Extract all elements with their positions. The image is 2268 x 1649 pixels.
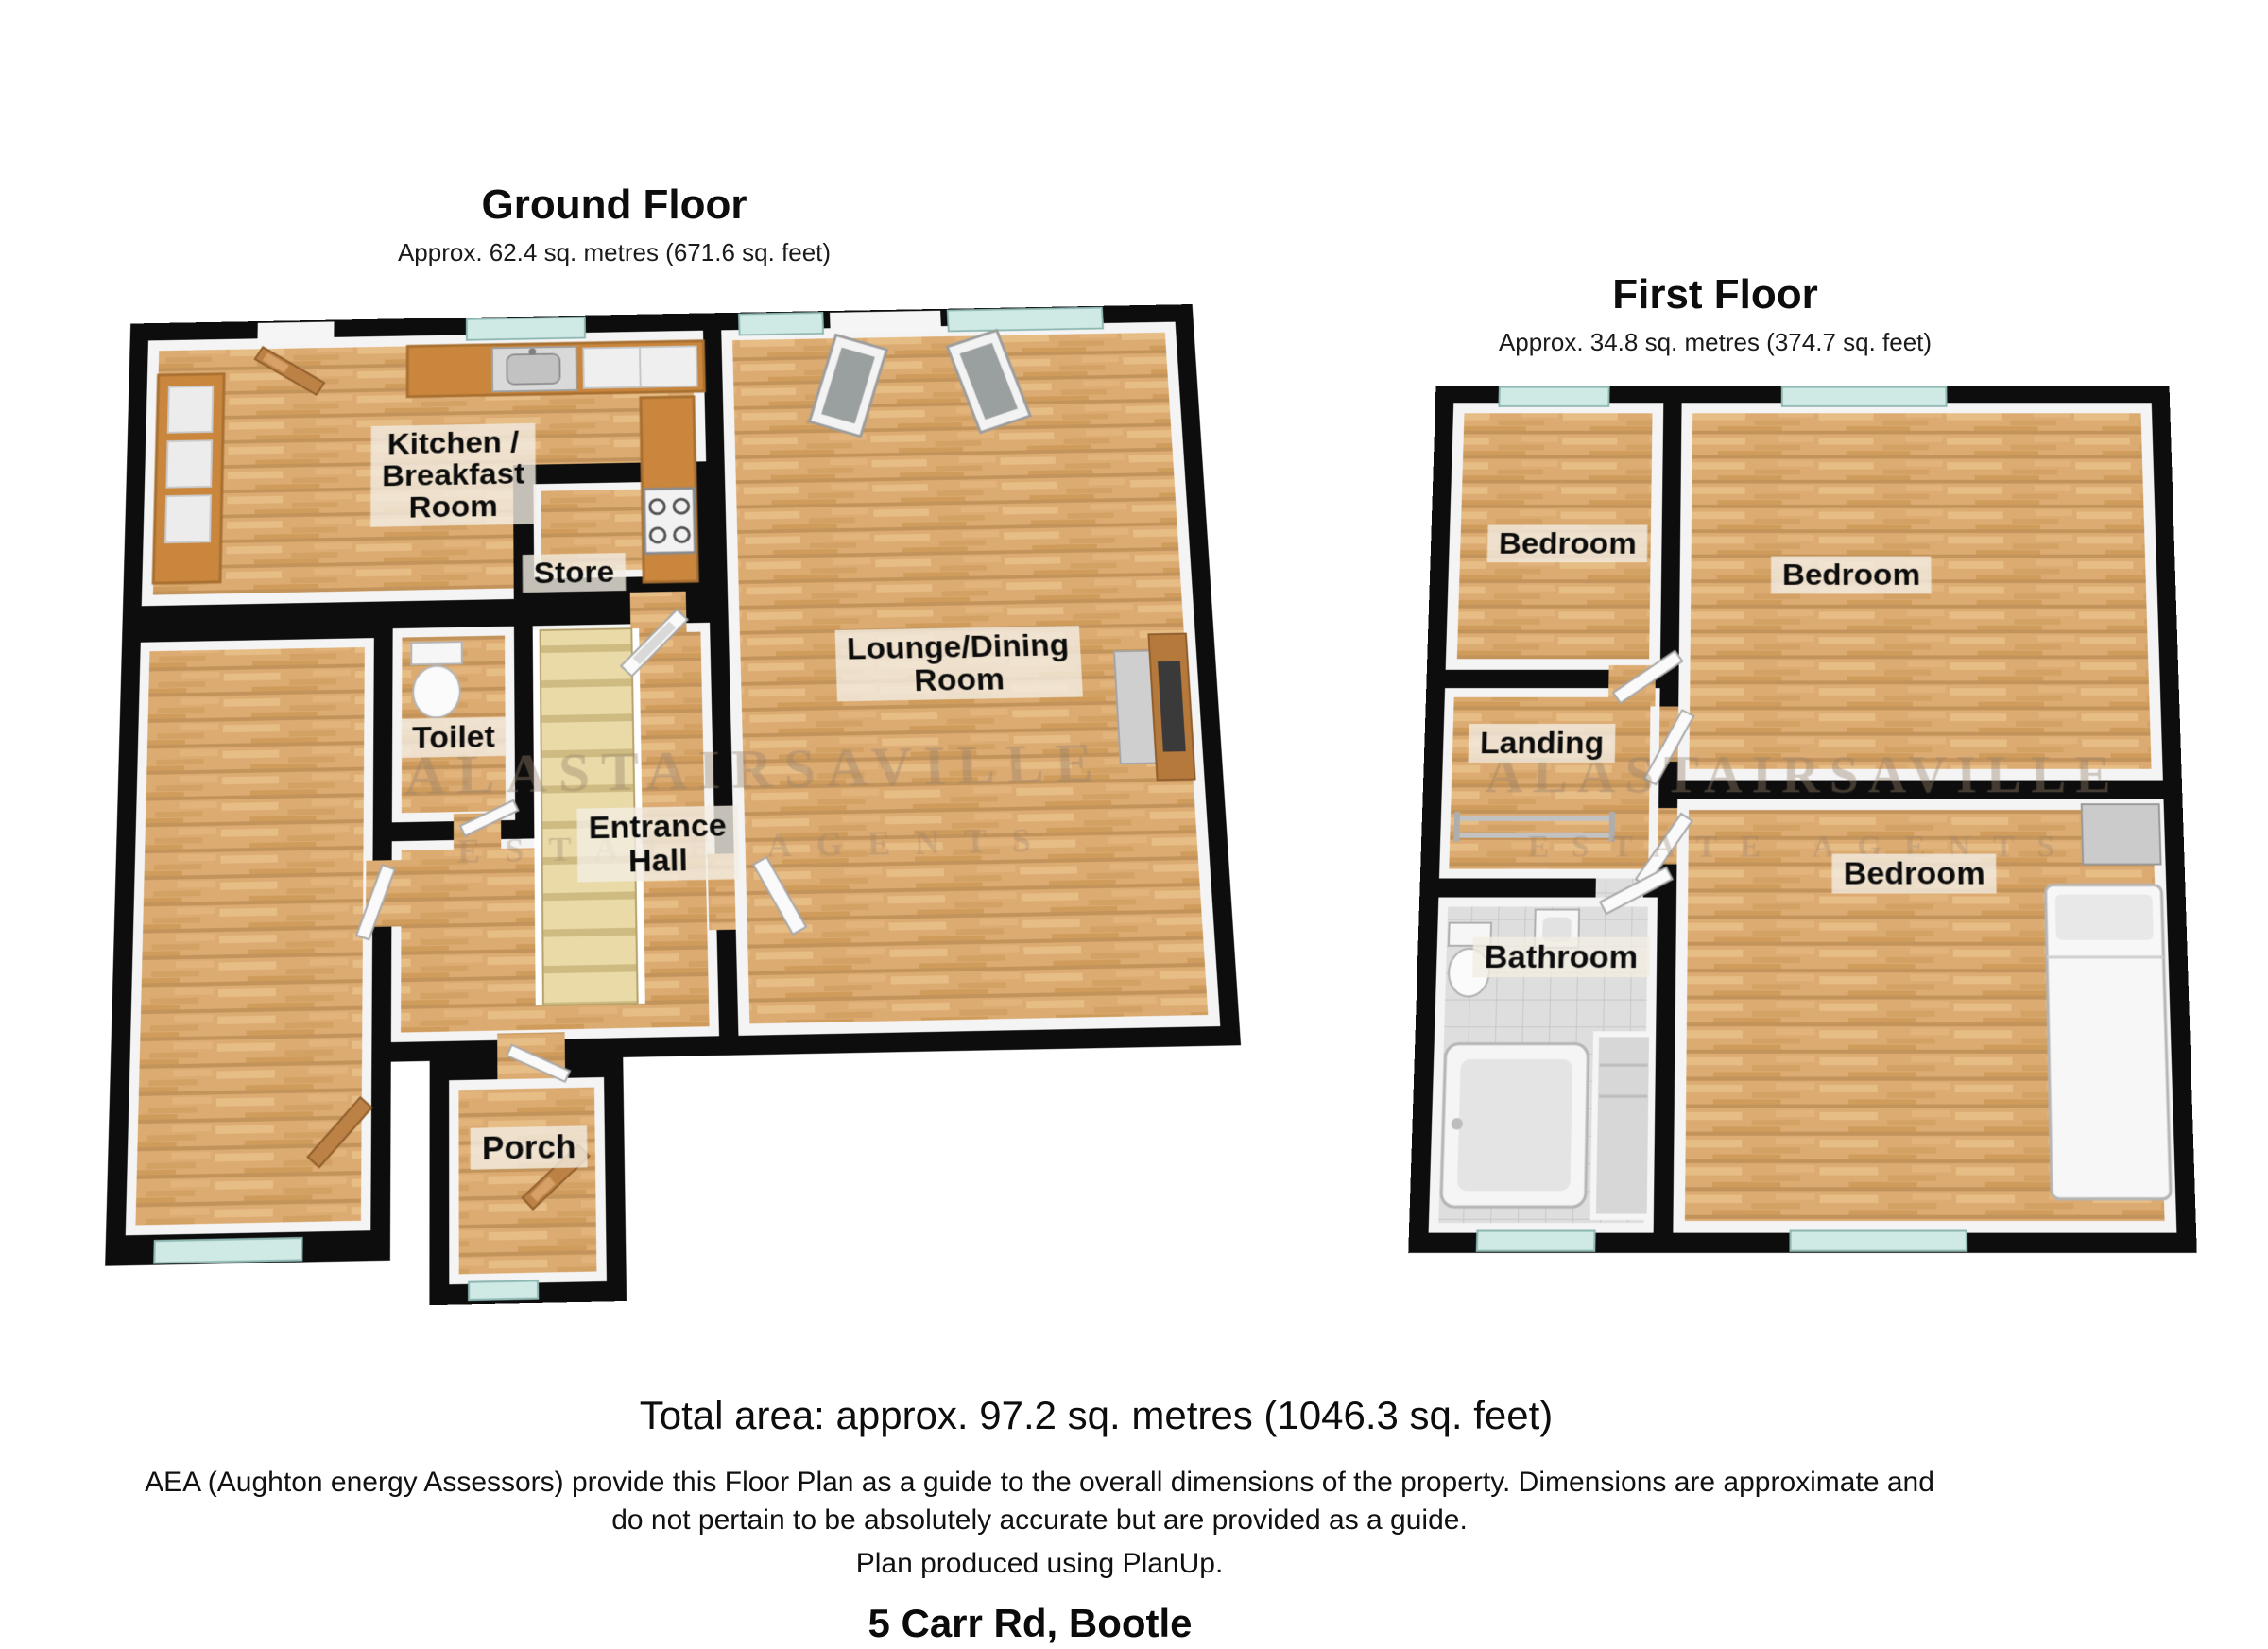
label-bathroom: Bathroom bbox=[1472, 937, 1650, 978]
lounge-window-right bbox=[948, 308, 1103, 332]
ground-floor-plan: ALASTAIRSAVILLE ESTATE AGENTS Kitchen / … bbox=[74, 303, 1291, 1312]
label-store: Store bbox=[523, 553, 626, 593]
label-landing: Landing bbox=[1468, 724, 1615, 763]
ground-floor-subtitle: Approx. 62.4 sq. metres (671.6 sq. feet) bbox=[113, 238, 1115, 267]
bedroom2-window bbox=[1782, 387, 1947, 406]
label-porch: Porch bbox=[471, 1125, 588, 1169]
bath-fixture bbox=[1441, 1044, 1589, 1208]
wardrobe bbox=[2082, 804, 2161, 864]
first-floor-title: First Floor bbox=[1422, 272, 2008, 318]
produced-with-text: Plan produced using PlanUp. bbox=[0, 1548, 2079, 1580]
room-landing bbox=[1439, 688, 1660, 878]
left-room-window bbox=[154, 1238, 301, 1263]
lounge-door-opening bbox=[830, 311, 941, 334]
label-bedroom-top-right: Bedroom bbox=[1771, 557, 1932, 594]
first-floor-plan-graphic bbox=[1407, 386, 2197, 1279]
shower-fixture bbox=[1593, 1034, 1652, 1216]
toilet-fixture bbox=[411, 642, 462, 718]
porch-window bbox=[469, 1280, 538, 1300]
bedroom3-window bbox=[1791, 1231, 1967, 1251]
disclaimer-line-1: AEA (Aughton energy Assessors) provide t… bbox=[0, 1467, 2079, 1499]
bed bbox=[2045, 885, 2171, 1199]
label-bedroom-bottom-right: Bedroom bbox=[1831, 854, 1996, 894]
room-porch bbox=[449, 1043, 607, 1301]
bathroom-window bbox=[1477, 1231, 1595, 1251]
kitchen-counter-left bbox=[153, 374, 224, 584]
kitchen-door-opening bbox=[257, 321, 334, 343]
property-address: 5 Carr Rd, Bootle bbox=[0, 1601, 2060, 1646]
kitchen-sink bbox=[492, 347, 576, 392]
bedroom1-window bbox=[1499, 387, 1608, 406]
fireplace bbox=[1113, 634, 1195, 781]
lounge-window-left bbox=[739, 313, 823, 335]
first-floor-subtitle: Approx. 34.8 sq. metres (374.7 sq. feet) bbox=[1422, 328, 2008, 357]
label-lounge: Lounge/Dining Room bbox=[835, 626, 1083, 701]
kitchen-window bbox=[467, 318, 585, 340]
total-area-text: Total area: approx. 97.2 sq. metres (104… bbox=[0, 1393, 2192, 1438]
first-floor-plan: ALASTAIRSAVILLE ESTATE AGENTS Bedroom Be… bbox=[1407, 386, 2197, 1279]
label-kitchen: Kitchen / Breakfast Room bbox=[370, 423, 536, 527]
label-bedroom-top-left: Bedroom bbox=[1487, 525, 1648, 563]
ground-floor-title: Ground Floor bbox=[113, 182, 1115, 228]
room-left-reception bbox=[125, 638, 374, 1263]
disclaimer-line-2: do not pertain to be absolutely accurate… bbox=[0, 1504, 2079, 1537]
label-toilet: Toilet bbox=[401, 717, 507, 758]
label-entrance-hall: Entrance Hall bbox=[576, 805, 739, 882]
stove-hob bbox=[644, 489, 696, 554]
